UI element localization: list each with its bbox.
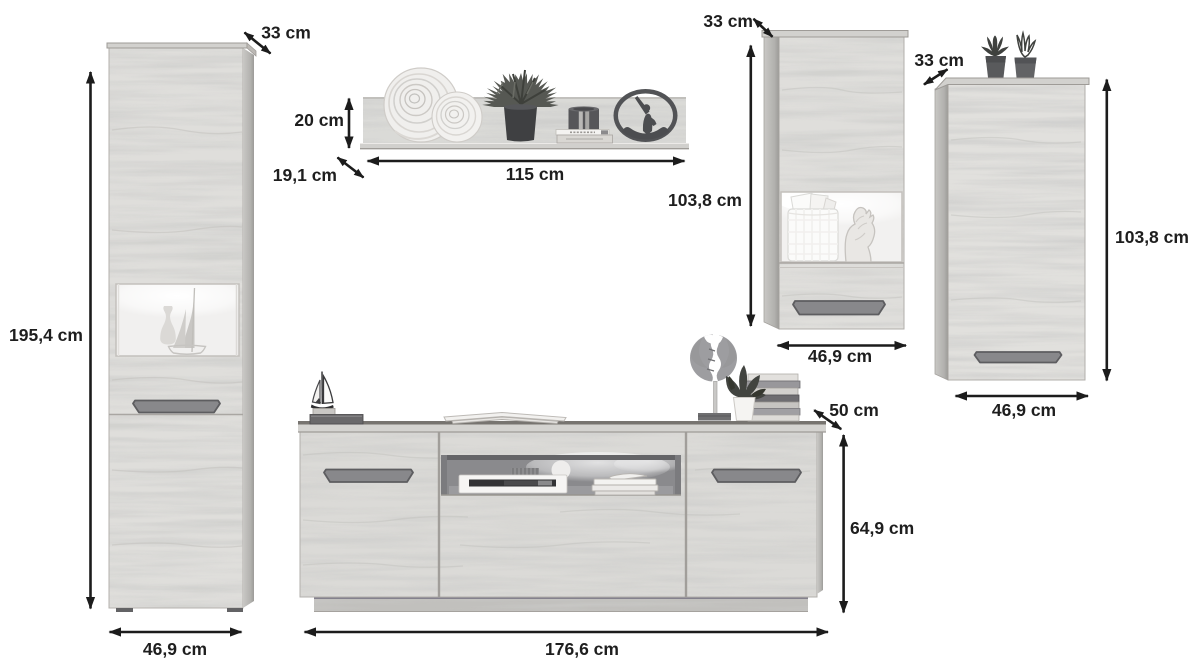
svg-text:33 cm: 33 cm <box>261 23 311 43</box>
svg-text:50 cm: 50 cm <box>829 400 879 420</box>
svg-text:33 cm: 33 cm <box>703 11 753 31</box>
svg-text:19,1 cm: 19,1 cm <box>273 165 337 185</box>
svg-text:20 cm: 20 cm <box>294 110 344 130</box>
svg-text:46,9 cm: 46,9 cm <box>992 400 1056 420</box>
svg-text:64,9 cm: 64,9 cm <box>850 518 914 538</box>
svg-text:46,9 cm: 46,9 cm <box>143 639 207 659</box>
svg-text:103,8 cm: 103,8 cm <box>1115 227 1189 247</box>
svg-text:195,4 cm: 195,4 cm <box>9 325 83 345</box>
svg-text:176,6 cm: 176,6 cm <box>545 639 619 659</box>
svg-text:33 cm: 33 cm <box>914 50 964 70</box>
svg-text:115 cm: 115 cm <box>506 164 564 184</box>
svg-text:46,9 cm: 46,9 cm <box>808 346 872 366</box>
svg-text:103,8 cm: 103,8 cm <box>668 190 742 210</box>
